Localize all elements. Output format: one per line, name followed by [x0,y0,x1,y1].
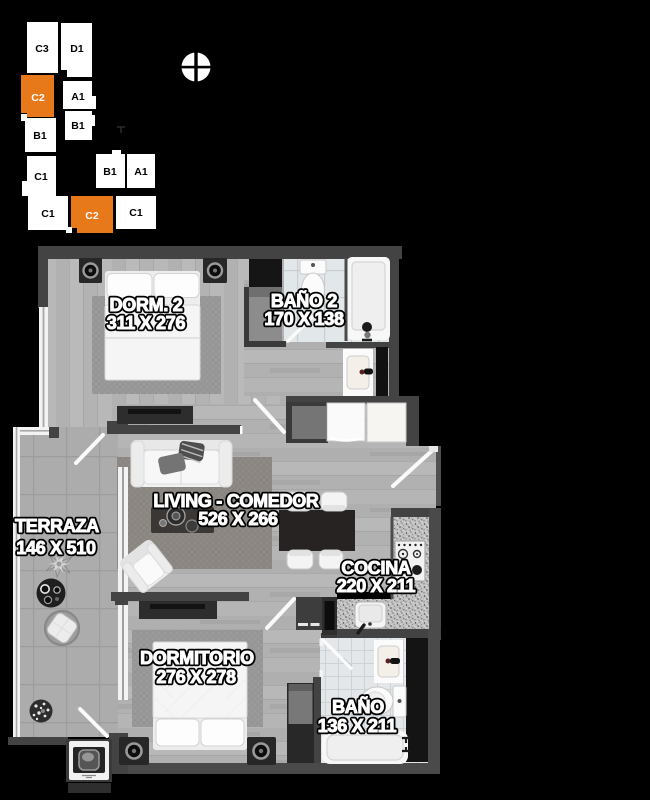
svg-text:LIVING - COMEDOR: LIVING - COMEDOR [153,491,318,511]
svg-text:170 X 138: 170 X 138 [264,309,344,329]
svg-text:B1: B1 [33,130,47,142]
svg-text:C2: C2 [31,92,45,104]
svg-text:220 X 211: 220 X 211 [337,576,416,596]
svg-text:B1: B1 [71,120,85,132]
svg-text:B1: B1 [103,166,117,178]
svg-text:TERRAZA: TERRAZA [15,516,99,536]
svg-text:146 X 510: 146 X 510 [16,538,96,558]
svg-text:BAÑO 2: BAÑO 2 [271,290,337,311]
svg-text:C3: C3 [35,43,49,55]
svg-text:136 X 211: 136 X 211 [318,716,397,736]
svg-text:276 X 278: 276 X 278 [156,667,236,687]
svg-text:DORMITORIO: DORMITORIO [140,648,254,668]
svg-text:C1: C1 [129,207,143,219]
svg-text:A1: A1 [71,91,85,103]
svg-text:BAÑO: BAÑO [332,696,384,717]
svg-text:D1: D1 [70,43,84,55]
svg-text:COCINA: COCINA [341,558,410,578]
svg-text:C1: C1 [41,208,55,220]
svg-text:C1: C1 [34,171,48,183]
svg-text:526 X 266: 526 X 266 [198,509,278,529]
svg-text:DORM. 2: DORM. 2 [110,295,183,315]
svg-text:C2: C2 [85,210,99,222]
svg-text:311 X 276: 311 X 276 [107,313,186,333]
svg-text:A1: A1 [134,166,148,178]
